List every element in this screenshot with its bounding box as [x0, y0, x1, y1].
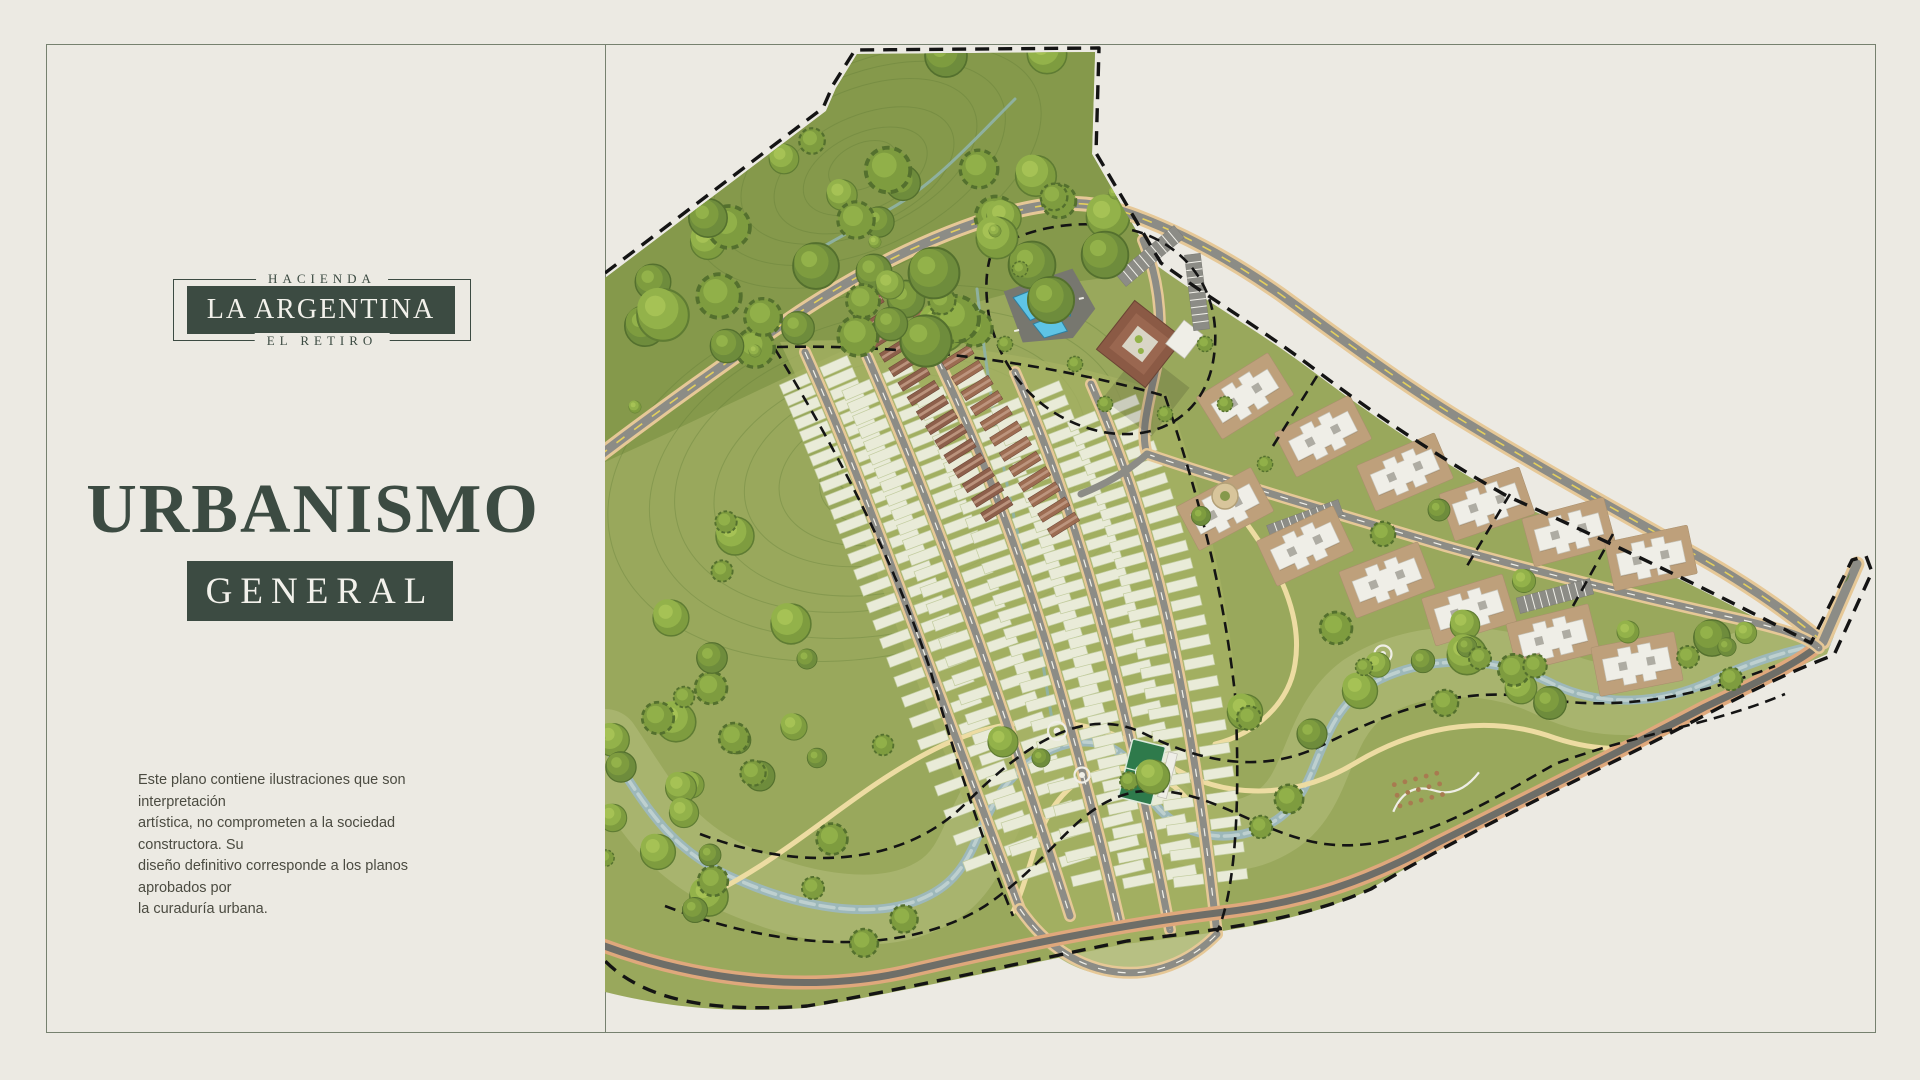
disclaimer-line: la curaduría urbana.	[138, 899, 478, 921]
disclaimer-text: Este plano contiene ilustraciones que so…	[138, 770, 478, 921]
disclaimer-line: artística, no comprometen a la sociedad …	[138, 813, 478, 856]
disclaimer-line: diseño definitivo corresponde a los plan…	[138, 856, 478, 899]
brand-name-badge: LA ARGENTINA	[187, 286, 455, 334]
condo-building	[1604, 525, 1697, 591]
brand-bottom-label: EL RETIRO	[255, 333, 390, 349]
page-title: URBANISMO	[83, 470, 543, 550]
poster-page: HACIENDA LA ARGENTINA EL RETIRO URBANISM…	[0, 0, 1920, 1080]
disclaimer-line: Este plano contiene ilustraciones que so…	[138, 770, 478, 813]
page-subtitle-badge: GENERAL	[187, 561, 453, 621]
brand-top-label: HACIENDA	[256, 271, 388, 287]
page-subtitle: GENERAL	[206, 570, 435, 613]
masterplan-map	[605, 44, 1877, 1033]
brand-logo: HACIENDA LA ARGENTINA EL RETIRO	[173, 279, 471, 341]
brand-name: LA ARGENTINA	[207, 294, 436, 326]
